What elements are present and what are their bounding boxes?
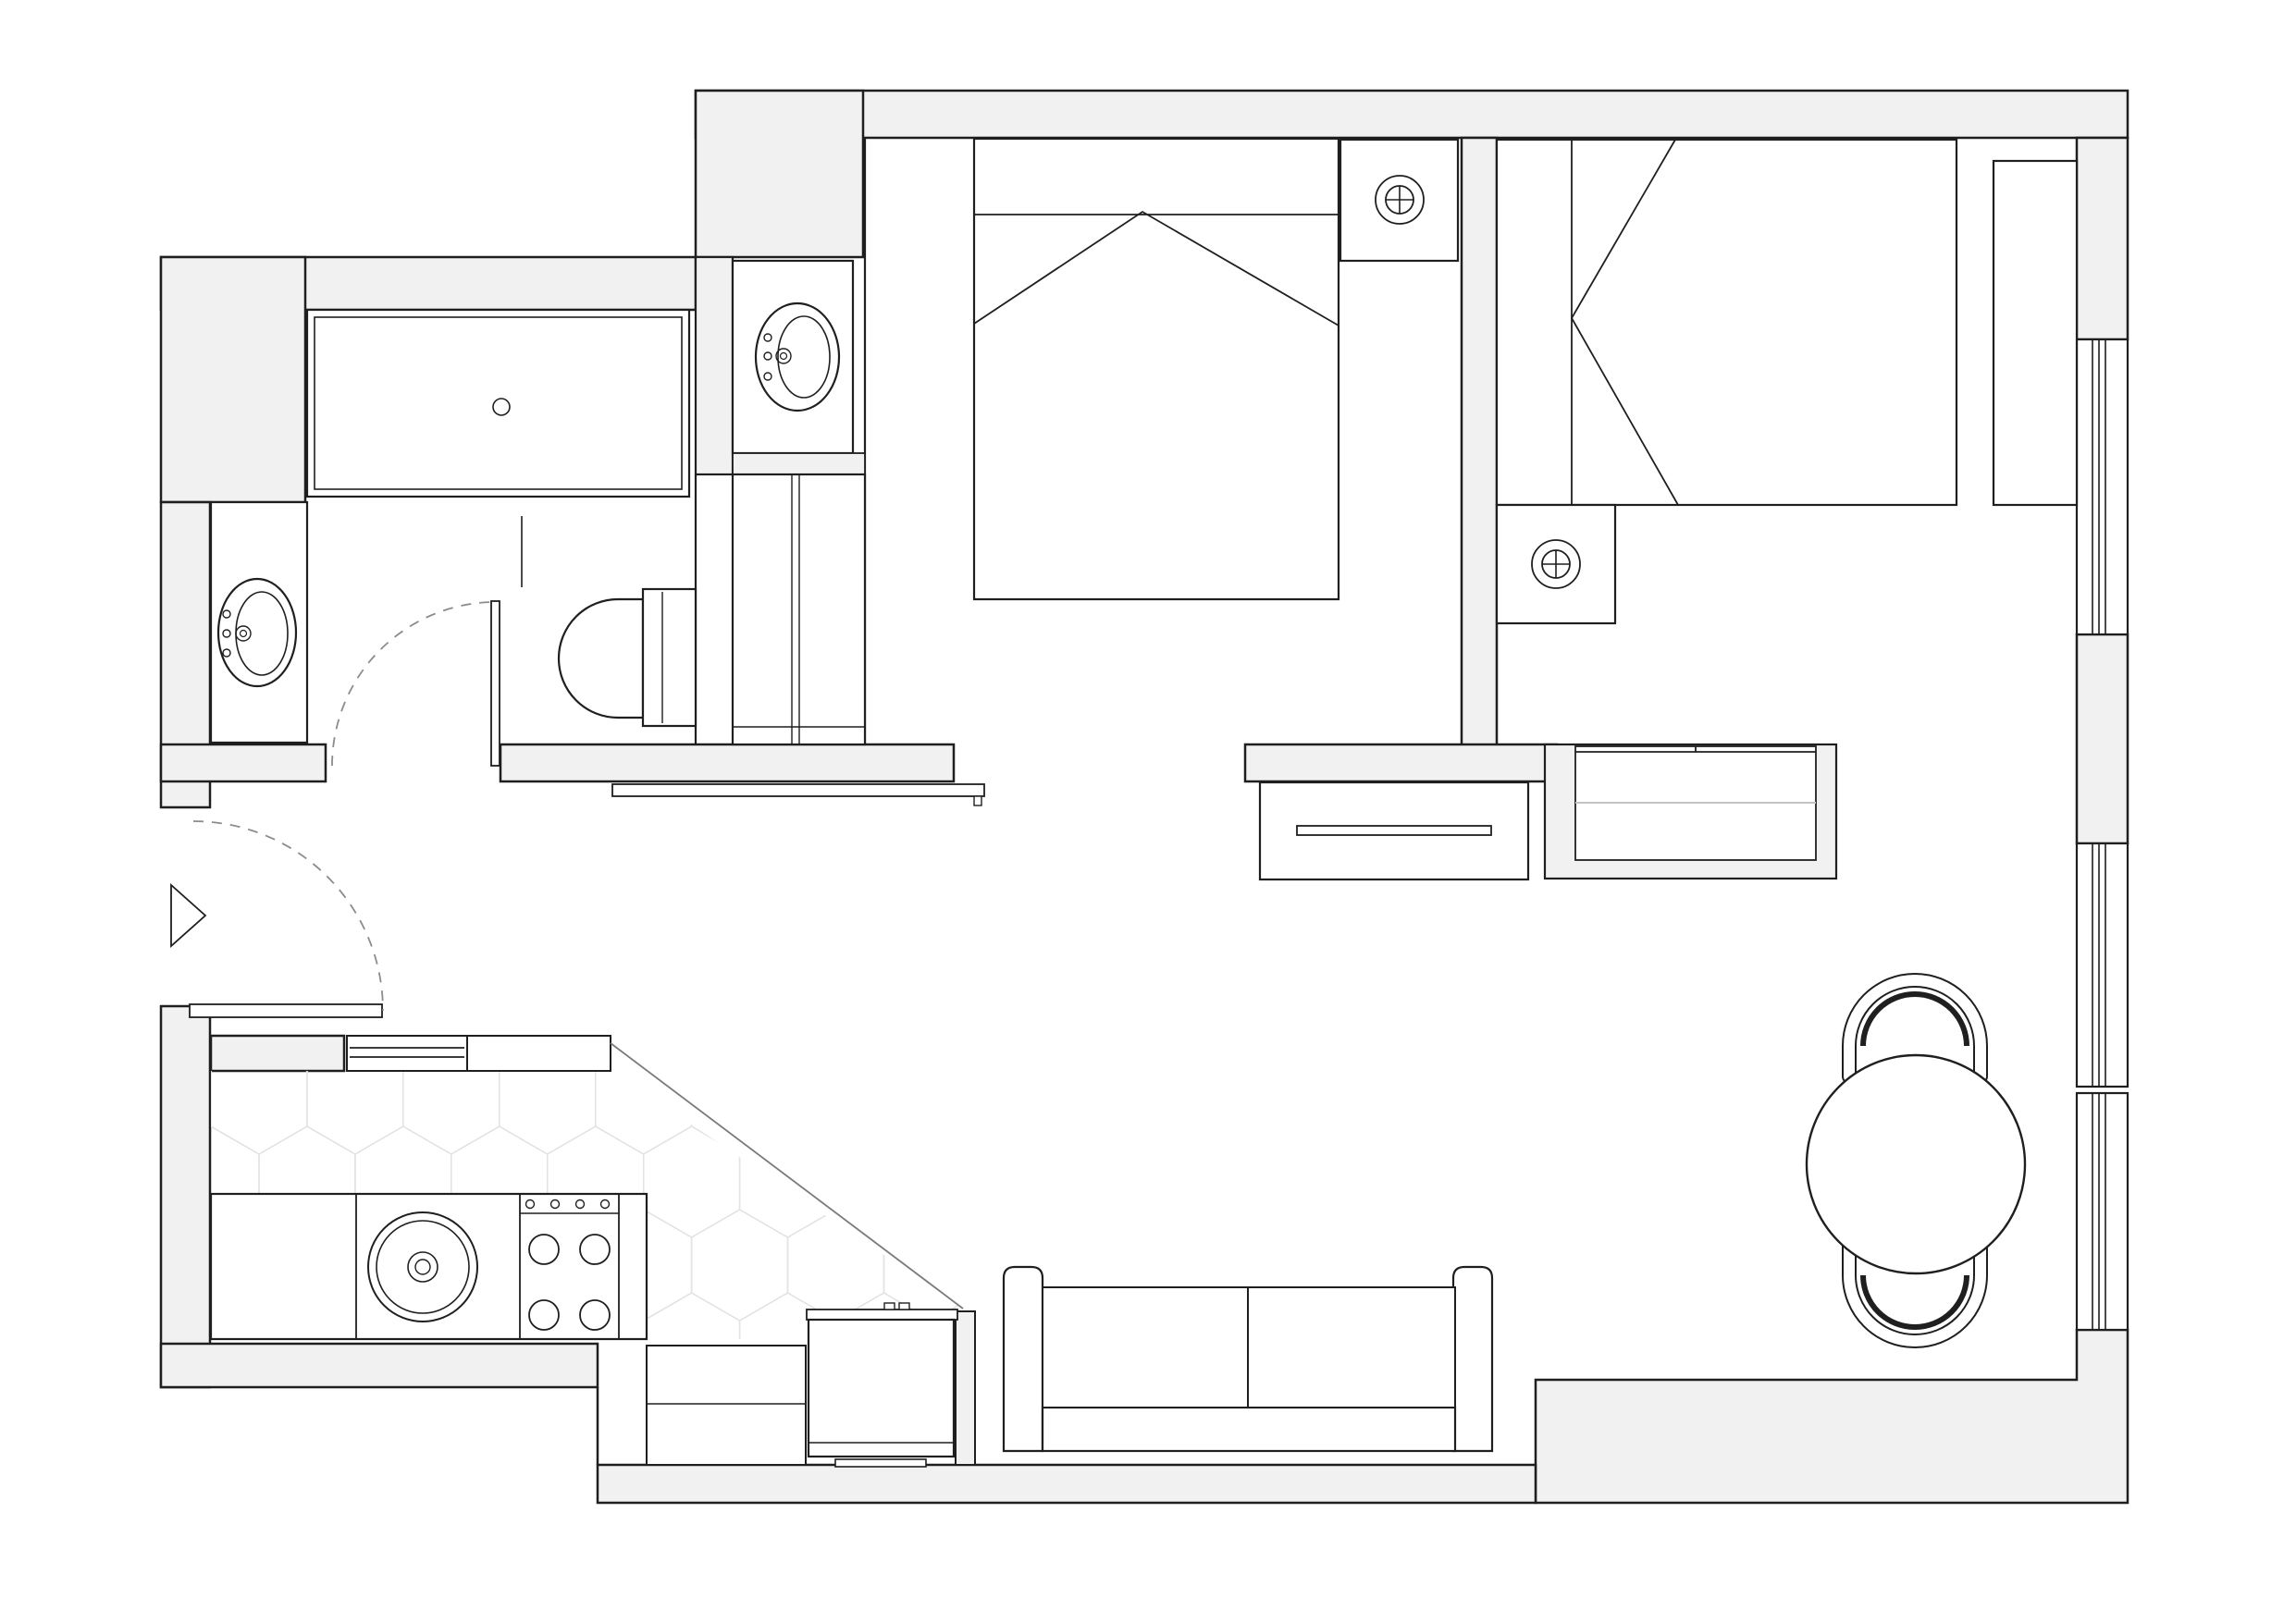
wardrobe-bedroom2 (1994, 161, 2077, 505)
wall-bottom-living (598, 1465, 1536, 1503)
wall-top-closet-column (696, 91, 863, 257)
lamp-2 (1532, 540, 1580, 588)
wall-bathroom-bottom-right (500, 744, 954, 781)
wall-appliance-partition (956, 1311, 975, 1465)
wall-kitchen-top-stub (211, 1036, 344, 1071)
closet-ledge (733, 453, 865, 474)
wall-bedroom-divider (1462, 138, 1497, 781)
wall-kitchen-bottom (161, 1344, 598, 1387)
bathtub (307, 310, 689, 497)
wall-left-lower (161, 1006, 210, 1387)
kitchen-counter (211, 1194, 647, 1339)
cabinet-bedroom2 (1545, 744, 1836, 879)
closet-sink-cabinet (733, 261, 853, 453)
kitchen-upper-cabinet (467, 1036, 611, 1071)
bed-second (1497, 140, 1957, 505)
wall-right-mid (2077, 634, 2128, 843)
window-right-2 (2077, 843, 2128, 1087)
dresser-living (1260, 782, 1528, 879)
appliance-fridge (807, 1303, 957, 1467)
wall-bedroom2-bottom (1245, 744, 1557, 781)
entry-door-leaf (190, 1004, 382, 1017)
wall-top (696, 91, 2128, 138)
window-right-3 (2077, 1093, 2128, 1330)
toilet (559, 589, 696, 726)
pedestal-sink (211, 502, 307, 743)
dining-table (1807, 1055, 2025, 1273)
wall-bathroom-left-bulge (161, 257, 305, 502)
kitchen-floor-diagonal (611, 1043, 963, 1309)
wall-right-bottom-corner (1536, 1330, 2128, 1503)
hallway-console-shelf (612, 784, 984, 805)
bathroom-door-leaf (491, 601, 500, 766)
entry-direction-arrow (171, 885, 205, 946)
wall-closet-left-strip (696, 257, 733, 474)
kitchen-upper-cabinet-vent (347, 1036, 467, 1071)
bathroom-door-swing-arc (332, 602, 496, 766)
lamp-1 (1376, 176, 1424, 224)
window-right-1 (2077, 339, 2128, 634)
entry-door-swing-arc (193, 821, 383, 1011)
wall-bathroom-bottom-left (161, 744, 326, 781)
floor-plan-svg (0, 0, 2296, 1623)
floor-plan-page (0, 0, 2296, 1623)
sofa (1004, 1267, 1492, 1451)
wall-right-upper (2077, 138, 2128, 339)
kitchen-side-cabinet (647, 1346, 806, 1465)
bed-double (974, 139, 1339, 599)
closet-lower-unit (733, 474, 865, 744)
